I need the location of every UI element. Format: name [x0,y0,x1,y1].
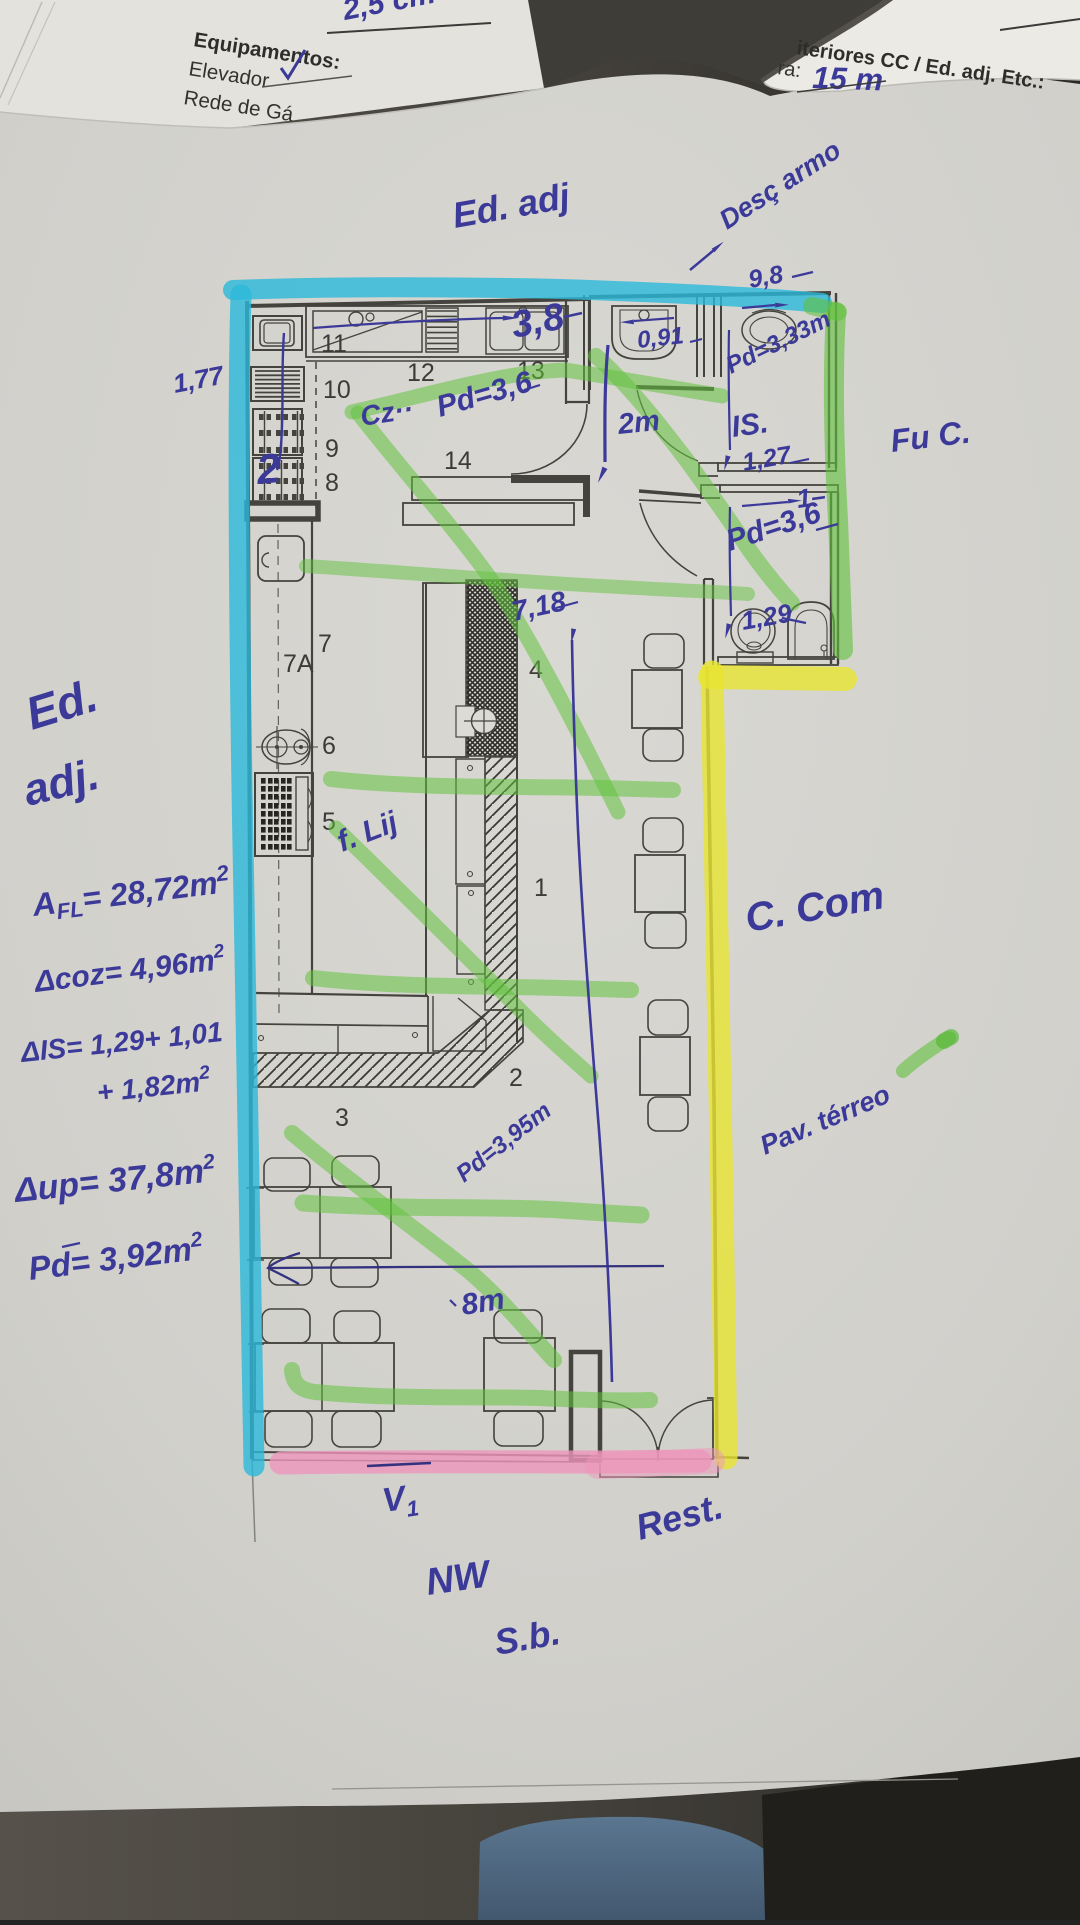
svg-text:7A: 7A [283,650,314,678]
svg-text:0,91: 0,91 [636,322,685,354]
svg-text:11: 11 [321,330,347,358]
svg-text:10: 10 [323,376,351,404]
svg-text:3: 3 [335,1104,349,1132]
svg-text:8m: 8m [459,1283,507,1322]
svg-text:7: 7 [318,630,332,658]
svg-text:2m: 2m [615,405,661,441]
svg-text:9: 9 [325,435,339,463]
svg-text:15 m: 15 m [812,60,884,97]
svg-text:1: 1 [534,874,548,902]
svg-text:9,8: 9,8 [746,260,785,294]
svg-text:14: 14 [444,447,472,475]
svg-text:12: 12 [407,359,435,387]
svg-text:ra:: ra: [776,57,802,82]
svg-text:2: 2 [254,444,282,493]
svg-text:6: 6 [322,732,336,760]
svg-text:2: 2 [509,1064,523,1092]
svg-text:IS.: IS. [729,406,770,444]
svg-text:8: 8 [325,469,339,497]
